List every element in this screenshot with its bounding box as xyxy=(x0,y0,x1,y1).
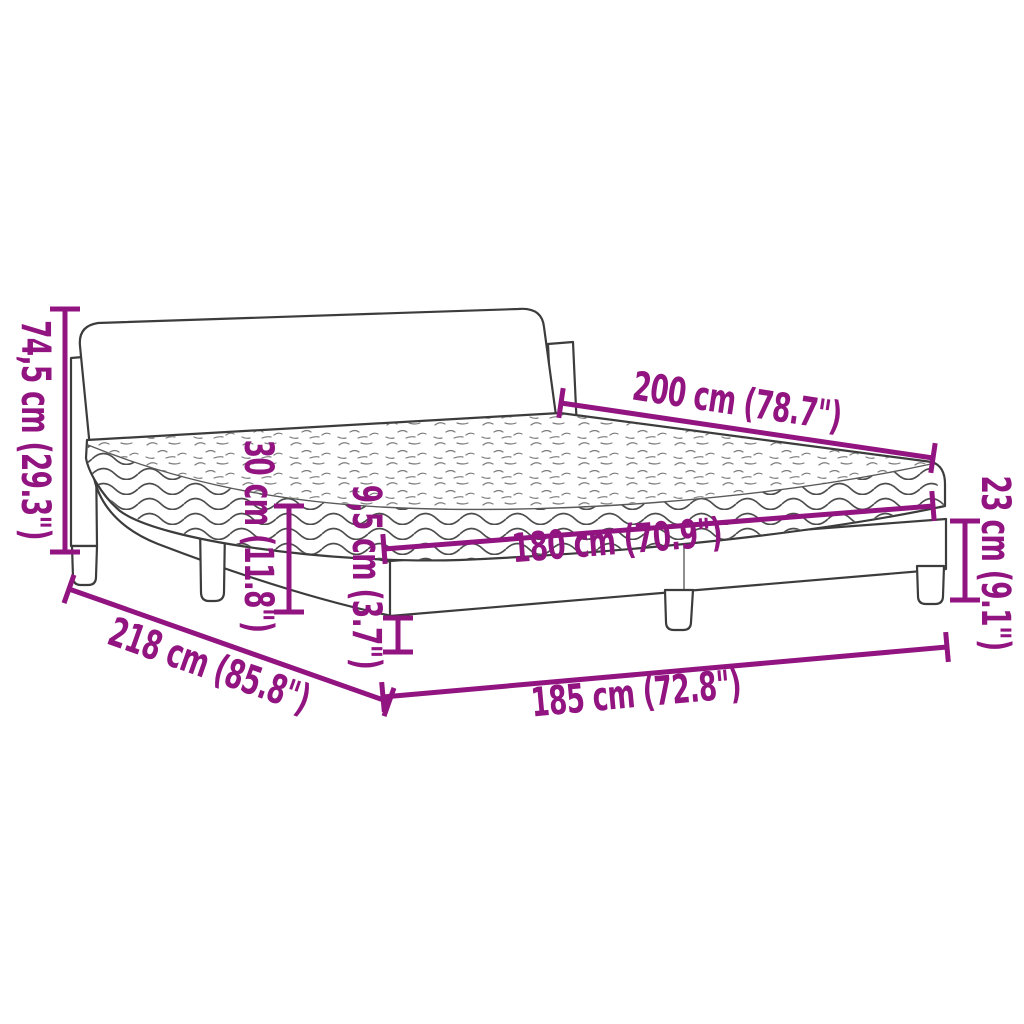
bed-line-art xyxy=(0,0,1024,1024)
product-dimension-diagram: 74,5 cm (29.3") 200 cm (78.7") 23 cm (9.… xyxy=(0,0,1024,1024)
frame-right-leg xyxy=(917,566,944,604)
bed-illustration xyxy=(71,309,946,630)
frame-middle-leg xyxy=(665,590,693,630)
dimension-label-frame-height: 23 cm (9.1") xyxy=(975,475,1015,650)
dimension-label-total-height: 74,5 cm (29.3") xyxy=(15,320,55,540)
dimension-label-base-rail-height: 9,5 cm (3.7") xyxy=(346,485,386,669)
dimension-label-mattress-thickness: 30 cm (11.8") xyxy=(238,440,278,633)
frame-back-left-leg xyxy=(72,546,97,585)
